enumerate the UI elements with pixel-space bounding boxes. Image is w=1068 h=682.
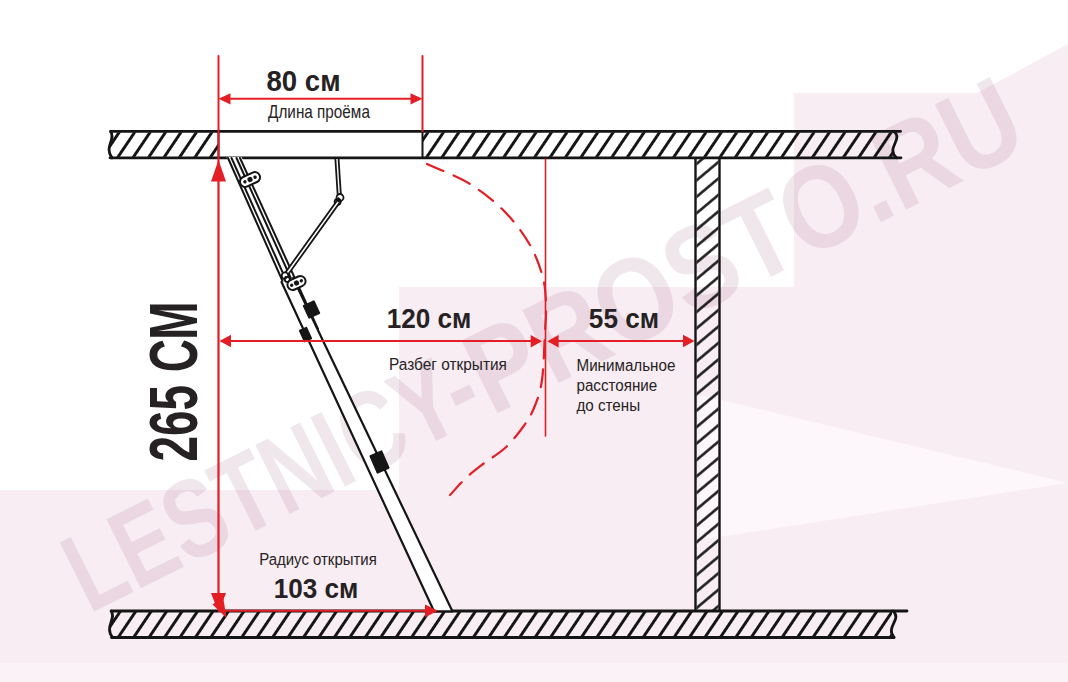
svg-text:до стены: до стены (577, 396, 641, 415)
svg-text:расстояние: расстояние (577, 376, 658, 395)
svg-text:Длина проёма: Длина проёма (268, 103, 371, 122)
svg-text:80 см: 80 см (266, 64, 340, 97)
svg-text:Разбег открытия: Разбег открытия (389, 354, 507, 373)
svg-text:120 см: 120 см (387, 304, 472, 335)
svg-text:Минимальное: Минимальное (577, 355, 676, 374)
svg-text:265 СМ: 265 СМ (135, 301, 211, 461)
svg-text:103 см: 103 см (274, 573, 359, 604)
svg-text:55 см: 55 см (589, 304, 659, 335)
svg-text:Радиус открытия: Радиус открытия (259, 550, 377, 568)
